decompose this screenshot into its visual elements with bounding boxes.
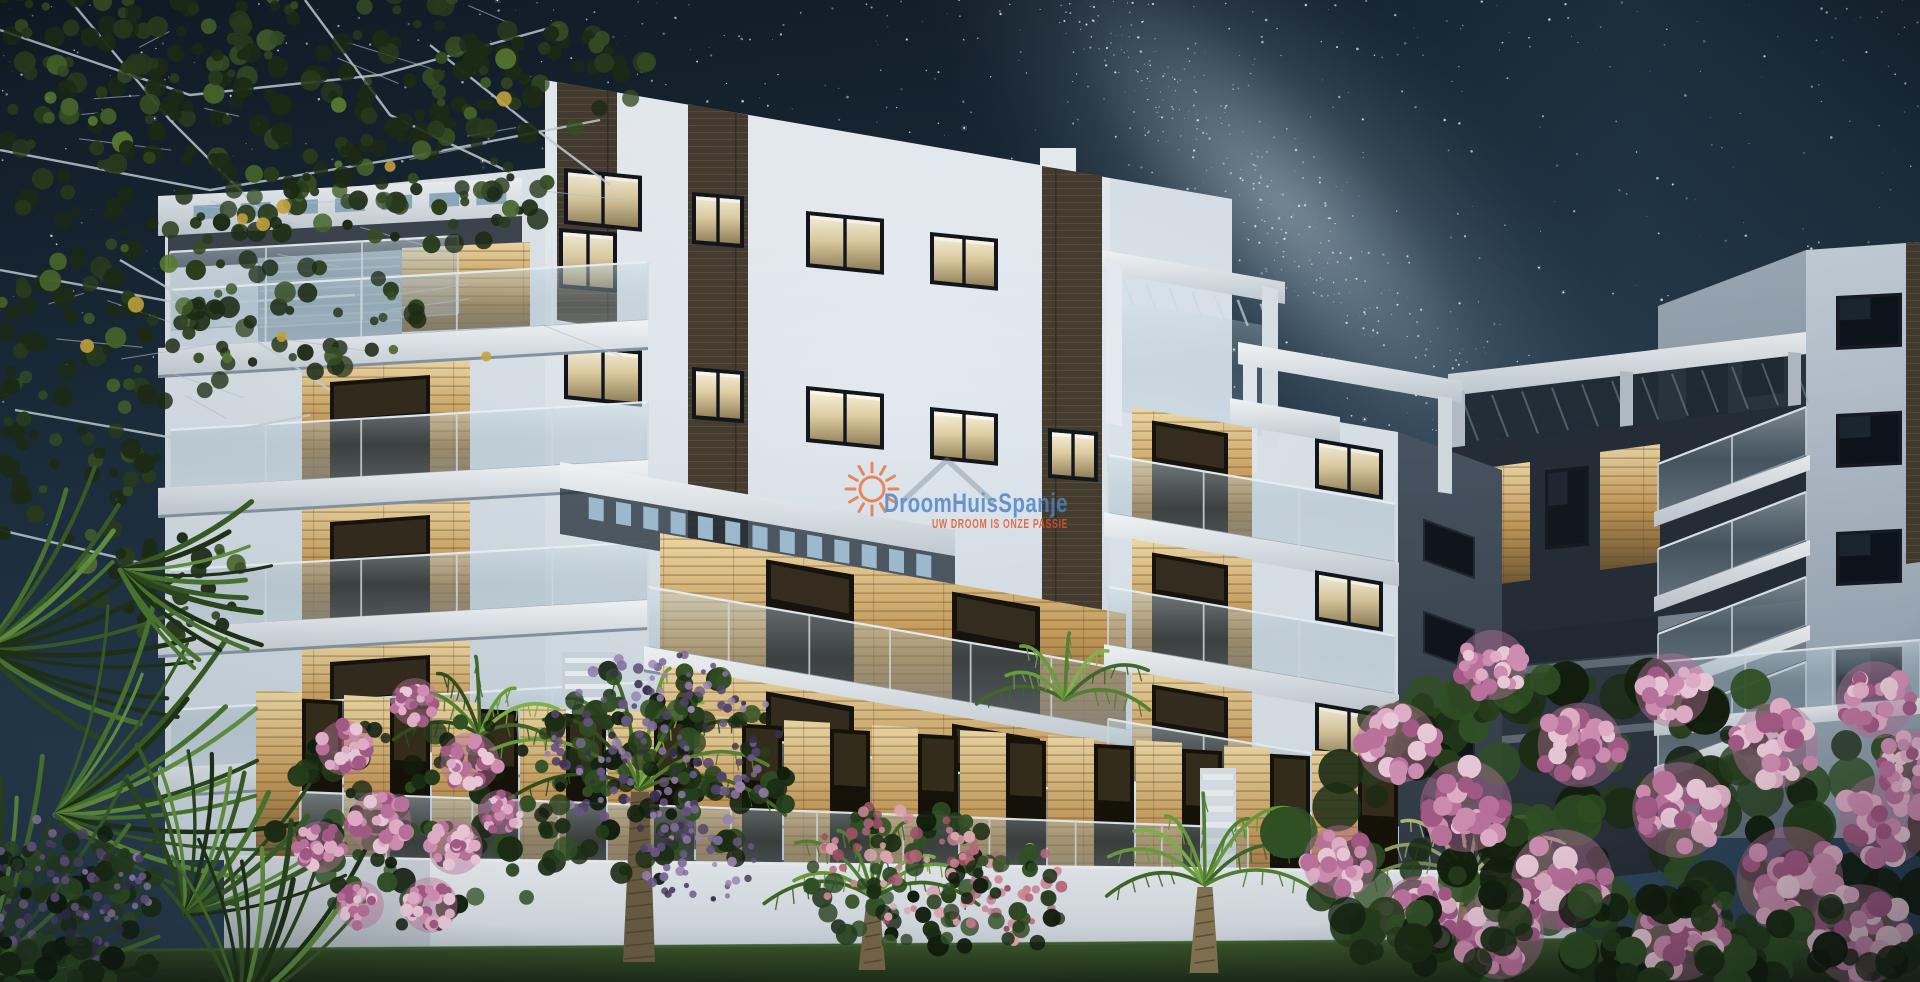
scene-canvas: DroomHuisSpanje UW DROOM IS ONZE PASSIE bbox=[0, 0, 1920, 982]
night-render-scene: DroomHuisSpanje UW DROOM IS ONZE PASSIE bbox=[0, 0, 1920, 982]
watermark-brand: DroomHuisSpanje bbox=[884, 488, 1068, 518]
watermark-tagline: UW DROOM IS ONZE PASSIE bbox=[932, 516, 1068, 531]
